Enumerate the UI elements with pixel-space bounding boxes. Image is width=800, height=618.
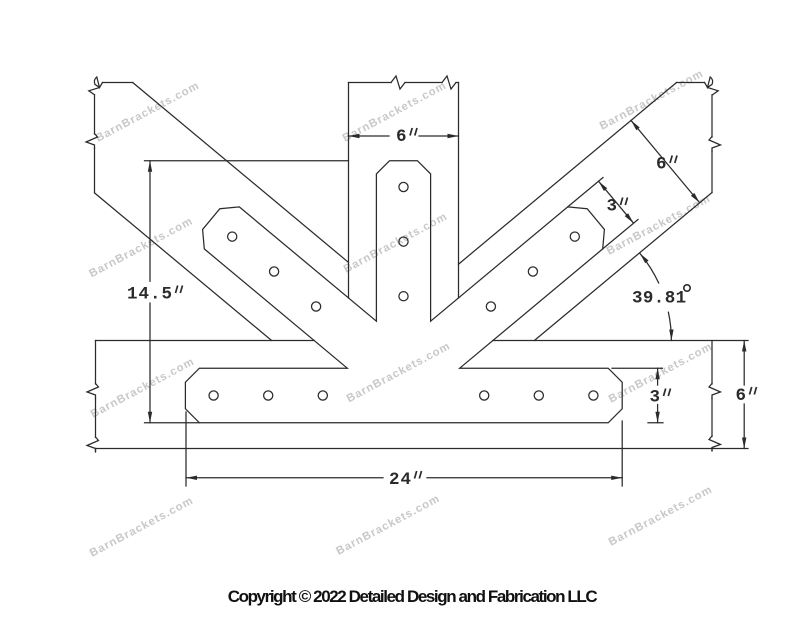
svg-text:14.5: 14.5 bbox=[127, 285, 173, 305]
svg-text:39.81: 39.81 bbox=[632, 289, 687, 309]
svg-text:6: 6 bbox=[736, 386, 748, 406]
svg-text:3: 3 bbox=[607, 197, 619, 217]
svg-text:3: 3 bbox=[650, 388, 662, 408]
svg-text:6: 6 bbox=[656, 155, 668, 175]
svg-text:Copyright © 2022 Detailed Desi: Copyright © 2022 Detailed Design and Fab… bbox=[228, 587, 598, 606]
svg-text:24: 24 bbox=[389, 470, 412, 490]
svg-text:6: 6 bbox=[396, 127, 408, 147]
